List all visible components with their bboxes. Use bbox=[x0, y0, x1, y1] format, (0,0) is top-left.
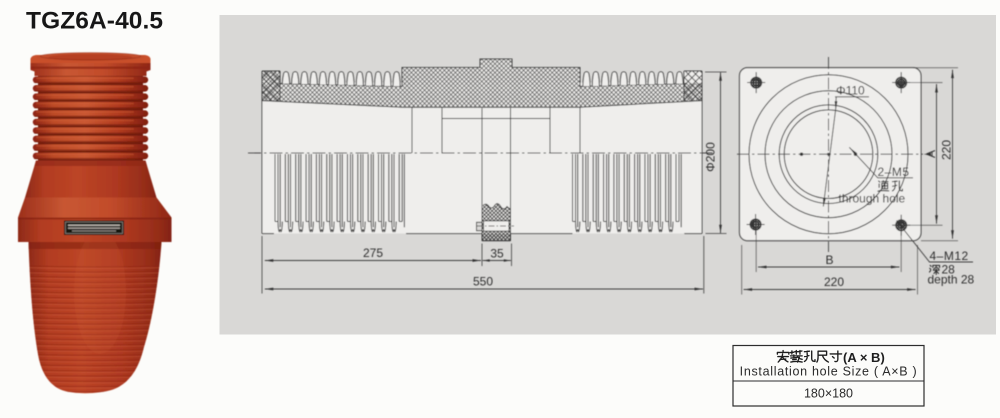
svg-text:TGZ6A-40.5: TGZ6A-40.5 bbox=[26, 8, 163, 35]
svg-text:4–M12: 4–M12 bbox=[930, 249, 969, 263]
svg-text:B: B bbox=[825, 253, 833, 267]
svg-text:275: 275 bbox=[363, 246, 383, 260]
svg-text:depth 28: depth 28 bbox=[928, 273, 975, 287]
svg-text:2–M5: 2–M5 bbox=[878, 165, 910, 179]
svg-text:550: 550 bbox=[473, 275, 493, 289]
svg-text:180×180: 180×180 bbox=[804, 387, 853, 401]
svg-text:through hole: through hole bbox=[839, 192, 906, 206]
svg-text:Φ110: Φ110 bbox=[836, 84, 865, 98]
svg-text:Installation hole Size ( A×B ): Installation hole Size ( A×B ) bbox=[740, 365, 918, 379]
svg-text:35: 35 bbox=[490, 247, 504, 261]
svg-text:A: A bbox=[924, 150, 938, 158]
svg-text:Φ200: Φ200 bbox=[704, 142, 718, 172]
svg-text:220: 220 bbox=[824, 275, 844, 289]
svg-text:220: 220 bbox=[940, 140, 954, 160]
svg-text:(A × B): (A × B) bbox=[843, 350, 885, 365]
